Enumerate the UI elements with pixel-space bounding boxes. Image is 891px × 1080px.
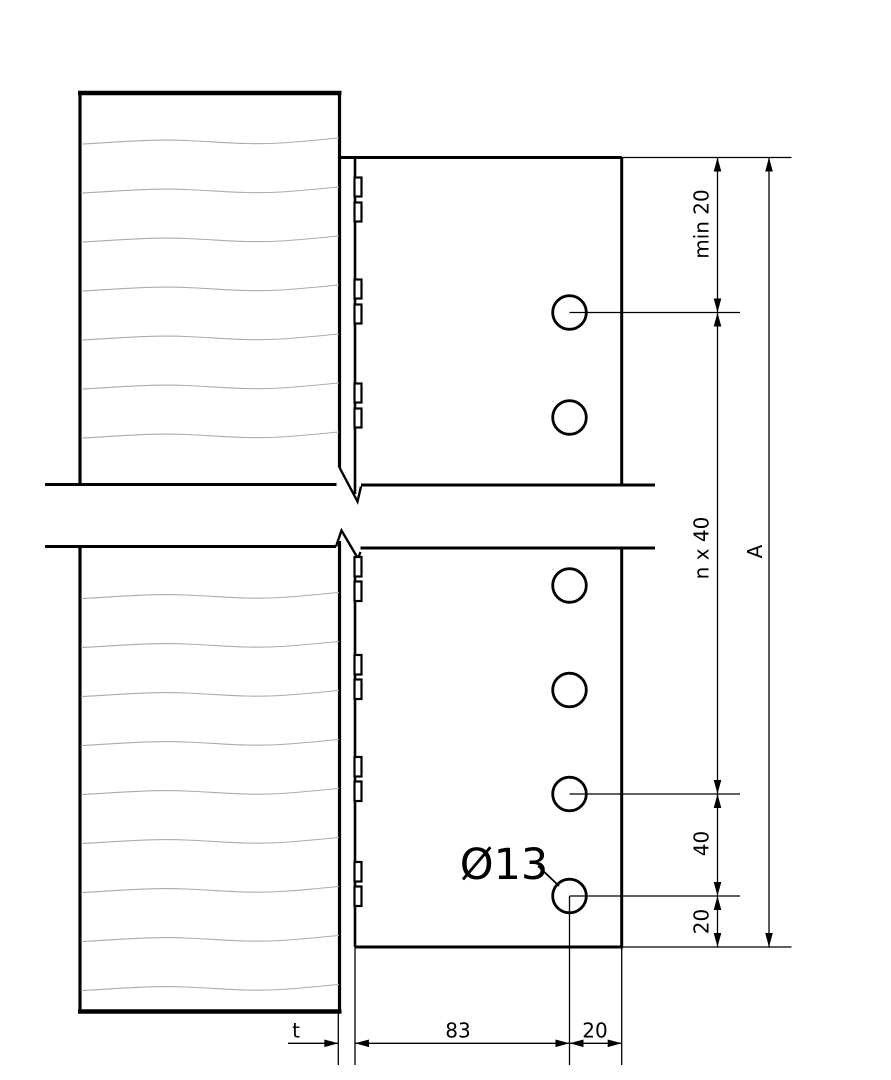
hole-diameter-callout: Ø13 (460, 840, 559, 890)
bolt-hole (553, 569, 587, 603)
weld-mark (355, 305, 362, 324)
dim-label-83: 83 (445, 1019, 470, 1043)
dim-label-n-x-40: n x 40 (690, 517, 714, 580)
weld-mark (355, 757, 362, 777)
weld-mark (355, 409, 362, 428)
bolt-hole (553, 673, 587, 707)
weld-mark (355, 655, 362, 675)
technical-drawing-sheet: min 20 n x 40 40 20 A t 83 20 Ø13 (0, 0, 891, 1080)
weld-mark (355, 557, 362, 577)
weld-mark (355, 782, 362, 802)
weld-mark (355, 582, 362, 602)
weld-mark (355, 384, 362, 403)
dim-label-A: A (743, 544, 767, 558)
hole-diameter-label: Ø13 (460, 840, 549, 890)
dim-label-20-right: 20 (690, 909, 714, 934)
dim-label-t: t (292, 1019, 300, 1043)
connection-detail-drawing: min 20 n x 40 40 20 A t 83 20 Ø13 (0, 0, 891, 1080)
drawing-background (0, 0, 891, 1080)
weld-mark (355, 680, 362, 700)
dim-label-min-20: min 20 (690, 189, 714, 259)
weld-mark (355, 280, 362, 299)
dim-label-40: 40 (690, 831, 714, 856)
weld-mark (355, 862, 362, 882)
bolt-hole (553, 401, 587, 435)
dim-label-20-bottom: 20 (582, 1019, 607, 1043)
weld-mark (355, 887, 362, 907)
weld-mark (355, 203, 362, 222)
weld-mark (355, 178, 362, 197)
